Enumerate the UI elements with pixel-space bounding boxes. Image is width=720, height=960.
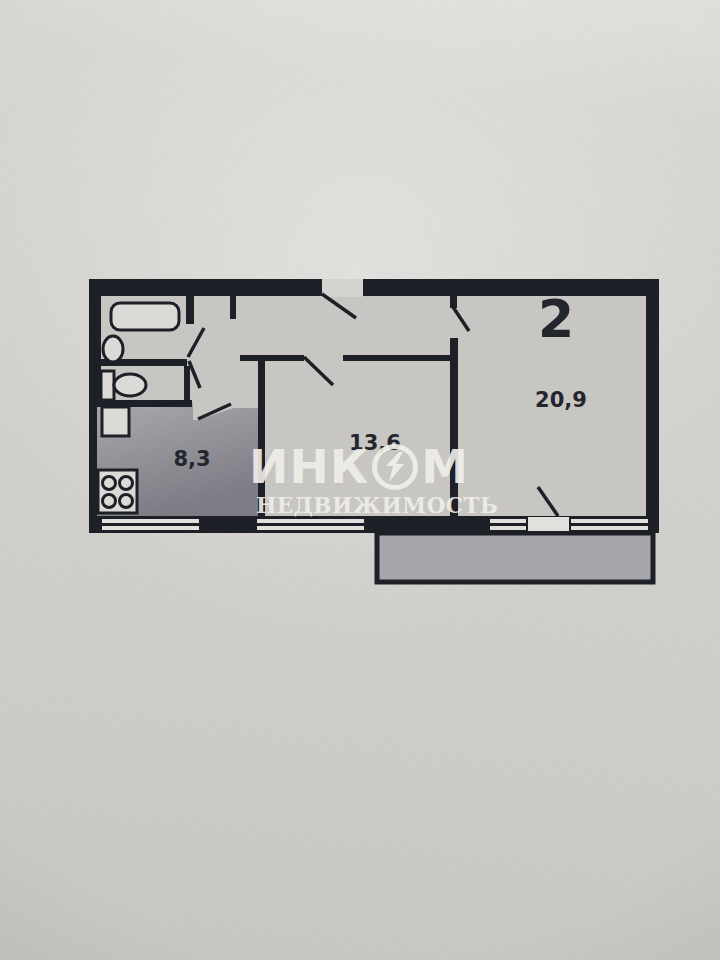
- bathtub-icon: [111, 303, 179, 330]
- floor-plan: [0, 0, 720, 960]
- flat-rooms-count-label: 2: [518, 293, 594, 345]
- room1-top-wall-left: [240, 355, 304, 361]
- photo-background: 8,3 13,6 20,9 2 ИНК М НЕДВИЖИМОСТЬ: [0, 0, 720, 960]
- balcony-door-opening: [528, 517, 569, 531]
- balcony: [377, 533, 653, 582]
- sink-icon: [103, 336, 123, 362]
- room1-top-wall-right: [343, 355, 457, 361]
- fridge-icon: [102, 407, 129, 436]
- toilet-wall: [184, 366, 190, 400]
- stove-icon: [98, 470, 137, 513]
- toilet-icon: [101, 371, 146, 400]
- corridor-wall-stub: [230, 296, 236, 319]
- kitchen-area-label: 8,3: [157, 449, 227, 470]
- kitchen-room-wall: [258, 355, 265, 516]
- room1-area-label: 13,6: [337, 433, 413, 454]
- room2-door-stub: [450, 296, 457, 308]
- room-divider-wall: [450, 338, 458, 516]
- room2-area-label: 20,9: [523, 390, 599, 411]
- entrance-opening: [322, 279, 363, 297]
- bathroom-wall: [186, 296, 194, 324]
